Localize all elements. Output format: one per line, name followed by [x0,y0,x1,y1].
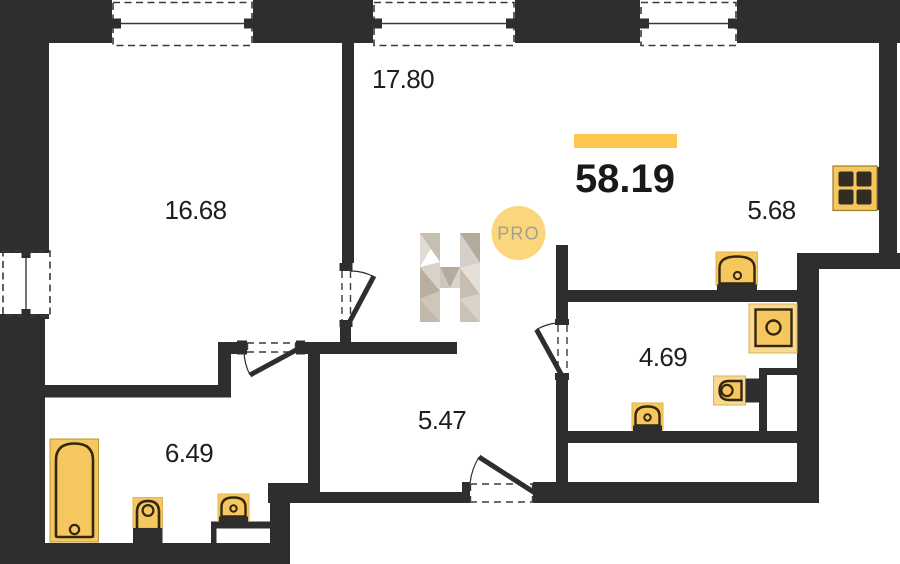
svg-text:5.47: 5.47 [418,405,466,435]
svg-text:16.68: 16.68 [164,195,226,225]
svg-text:17.80: 17.80 [372,64,434,94]
svg-text:58.19: 58.19 [575,157,675,201]
svg-text:PRO: PRO [497,224,540,244]
svg-text:4.69: 4.69 [639,342,687,372]
svg-text:5.68: 5.68 [747,195,795,225]
svg-text:6.49: 6.49 [165,438,213,468]
